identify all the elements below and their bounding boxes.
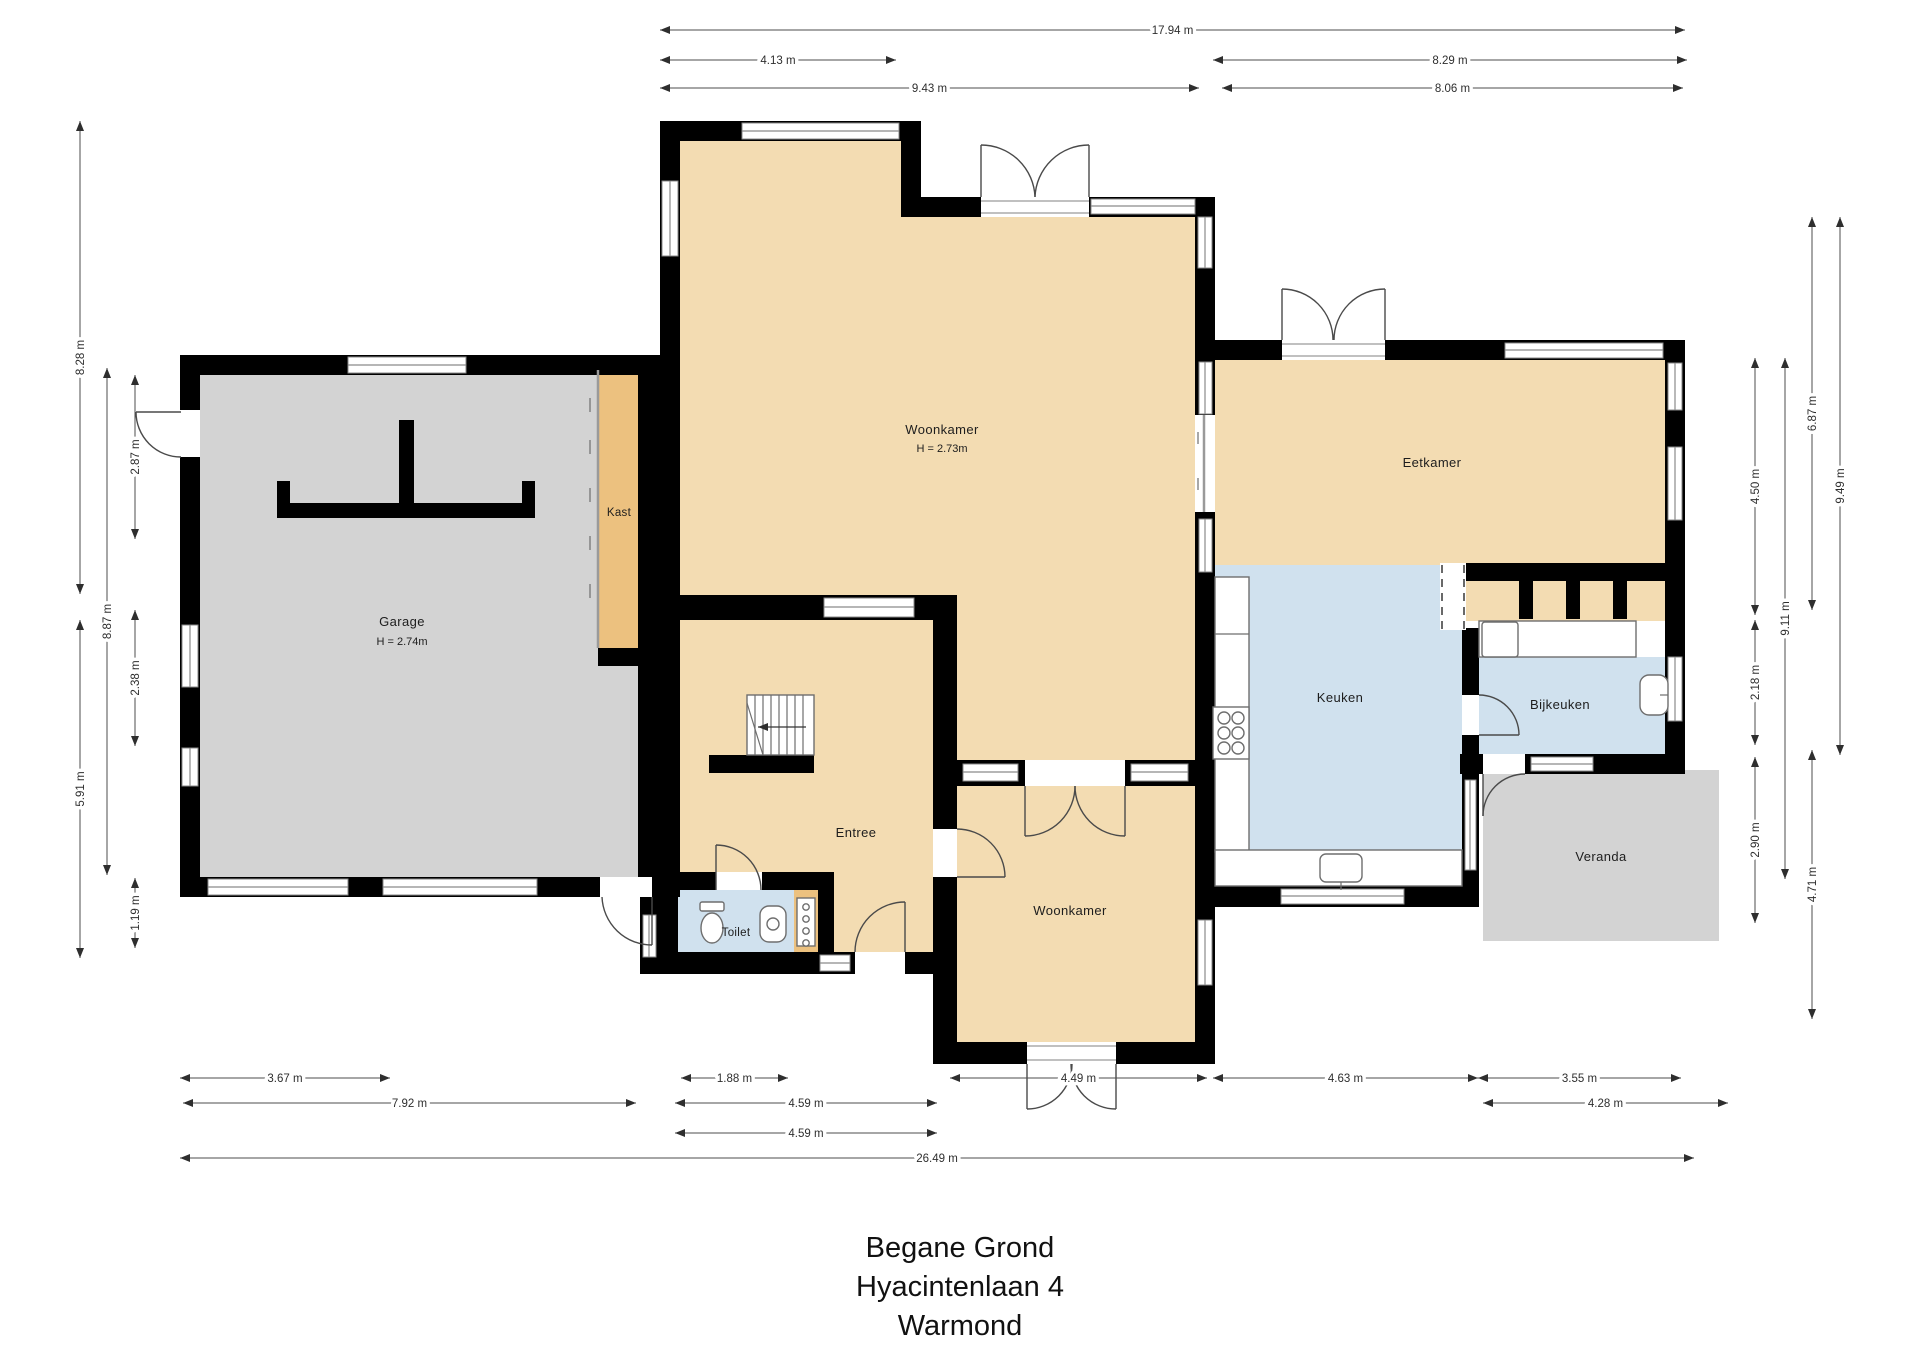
- kitchen-counter-left: [1213, 577, 1249, 852]
- door-eetkamer-french: [1282, 289, 1385, 340]
- label-woonkamer-bottom: Woonkamer: [1033, 903, 1107, 918]
- label-eetkamer: Eetkamer: [1403, 455, 1462, 470]
- dimension-label: 9.49 m: [1835, 468, 1847, 503]
- window: [1131, 764, 1188, 781]
- dimension-label: 4.59 m: [788, 1098, 823, 1110]
- dimension-label: 4.28 m: [1588, 1098, 1623, 1110]
- title-floor: Begane Grond: [866, 1232, 1055, 1264]
- title-block: Begane Grond Hyacintenlaan 4 Warmond: [856, 1232, 1064, 1342]
- dimension-label: 3.67 m: [267, 1073, 302, 1085]
- dimension-label: 4.49 m: [1061, 1073, 1096, 1085]
- dimension-label: 4.71 m: [1807, 867, 1819, 902]
- dimension-label: 5.91 m: [75, 771, 87, 806]
- dimension-label: 4.13 m: [760, 55, 795, 67]
- staircase: [747, 695, 814, 755]
- door-garage-west: [136, 412, 181, 457]
- title-city: Warmond: [898, 1310, 1023, 1342]
- dimension-label: 8.87 m: [102, 604, 114, 639]
- dimension-label: 9.11 m: [1780, 601, 1792, 635]
- label-toilet: Toilet: [722, 927, 751, 939]
- window: [1668, 657, 1682, 721]
- label-keuken: Keuken: [1317, 690, 1364, 705]
- label-veranda: Veranda: [1575, 849, 1627, 864]
- toilet-sink: [760, 906, 786, 942]
- meter-cabinet: [797, 898, 815, 946]
- dimension-label: 2.18 m: [1750, 665, 1762, 700]
- window: [182, 748, 198, 786]
- dimension-label: 2.38 m: [130, 660, 142, 695]
- label-woonkamer-top-height: H = 2.73m: [916, 443, 967, 455]
- dimension-label: 7.92 m: [392, 1098, 427, 1110]
- label-kast: Kast: [607, 507, 632, 519]
- window: [742, 123, 899, 139]
- floors: [200, 141, 1719, 1042]
- bijkeuken-sink: [1640, 675, 1668, 715]
- dimension-label: 26.49 m: [916, 1153, 958, 1165]
- passage-dashed: [1440, 563, 1466, 630]
- window: [1668, 447, 1682, 520]
- dimension-label: 2.90 m: [1750, 822, 1762, 857]
- floor-plan: Garage H = 2.74m Kast Woonkamer H = 2.73…: [0, 0, 1920, 1358]
- window: [1531, 757, 1593, 771]
- toilet-fixture: [700, 902, 724, 943]
- dimension-label: 8.28 m: [75, 340, 87, 375]
- window: [1465, 780, 1476, 870]
- window: [1505, 343, 1663, 358]
- window: [643, 915, 656, 957]
- window: [348, 357, 466, 373]
- bijkeuken-counter: [1479, 621, 1636, 657]
- door-french-south: [1027, 1064, 1116, 1109]
- dimension-label: 3.55 m: [1562, 1073, 1597, 1085]
- dimension-label: 17.94 m: [1152, 25, 1194, 37]
- dimension-label: 8.06 m: [1435, 83, 1470, 95]
- label-woonkamer-top: Woonkamer: [905, 422, 979, 437]
- label-entree: Entree: [836, 825, 877, 840]
- label-bijkeuken: Bijkeuken: [1530, 697, 1590, 712]
- dimension-label: 6.87 m: [1807, 396, 1819, 431]
- window: [1199, 362, 1212, 414]
- dimension-label: 9.43 m: [912, 83, 947, 95]
- dimension-label: 2.87 m: [130, 439, 142, 474]
- window: [1199, 519, 1212, 572]
- dimension-label: 8.29 m: [1432, 55, 1467, 67]
- window: [963, 764, 1018, 781]
- window: [208, 879, 348, 895]
- window: [1198, 217, 1212, 268]
- room-keuken-floor: [1213, 565, 1462, 886]
- window: [383, 879, 537, 895]
- window: [662, 181, 678, 256]
- dimension-label: 4.63 m: [1328, 1073, 1363, 1085]
- kitchen-counter-bottom: [1215, 850, 1462, 890]
- dimension-label: 4.59 m: [788, 1128, 823, 1140]
- window: [1091, 199, 1195, 214]
- window: [182, 625, 198, 687]
- window: [1281, 889, 1404, 904]
- window: [1198, 920, 1212, 985]
- door-french-north: [981, 145, 1089, 197]
- label-garage: Garage: [379, 614, 425, 629]
- window: [824, 598, 914, 617]
- dimension-label: 1.19 m: [130, 895, 142, 930]
- label-garage-height: H = 2.74m: [376, 636, 427, 648]
- window: [820, 955, 850, 971]
- window: [1668, 363, 1682, 410]
- title-address: Hyacintenlaan 4: [856, 1271, 1064, 1303]
- dimension-label: 1.88 m: [717, 1073, 752, 1085]
- dimension-label: 4.50 m: [1750, 469, 1762, 504]
